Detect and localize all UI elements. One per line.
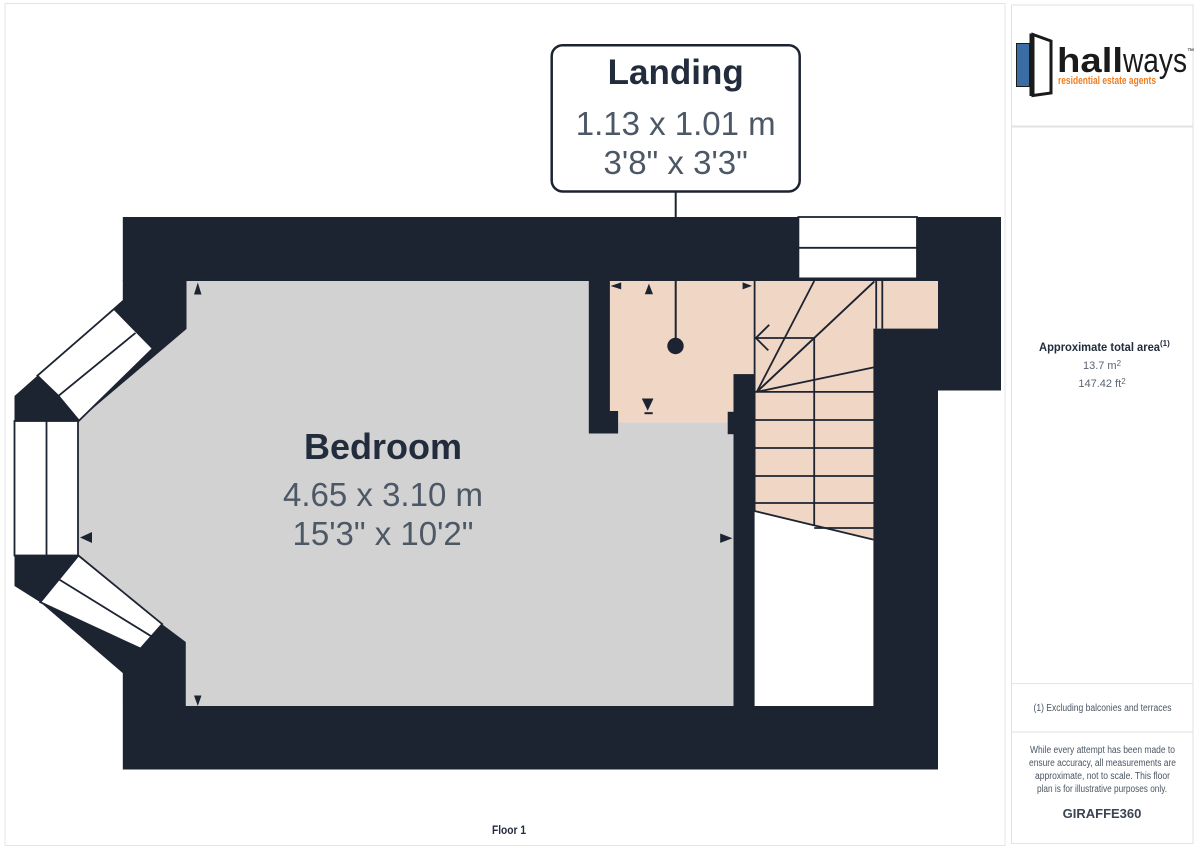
svg-text:plan is for illustrative purpo: plan is for illustrative purposes only. [1037,784,1167,795]
svg-text:While every attempt has been m: While every attempt has been made to [1030,745,1175,756]
svg-text:(1) Excluding balconies and te: (1) Excluding balconies and terraces [1034,703,1172,714]
svg-text:147.42 ft2: 147.42 ft2 [1078,377,1126,390]
svg-text:™: ™ [1187,48,1194,55]
svg-text:4.65 x 3.10 m: 4.65 x 3.10 m [283,476,483,513]
svg-text:residential estate agents: residential estate agents [1058,75,1156,87]
svg-text:GIRAFFE360: GIRAFFE360 [1063,806,1142,821]
svg-text:13.7 m2: 13.7 m2 [1083,359,1122,372]
svg-text:15'3" x 10'2": 15'3" x 10'2" [293,515,474,552]
svg-text:ensure accuracy, all measureme: ensure accuracy, all measurements are [1029,758,1176,769]
svg-text:(1): (1) [1160,339,1170,348]
svg-text:Approximate total area: Approximate total area [1039,340,1160,354]
svg-text:Floor 1: Floor 1 [492,823,526,837]
svg-text:approximate, not to scale. Thi: approximate, not to scale. This floor [1035,771,1171,782]
svg-text:Landing: Landing [608,53,744,92]
svg-text:1.13 x 1.01 m: 1.13 x 1.01 m [576,105,776,142]
svg-text:Bedroom: Bedroom [304,426,462,467]
svg-text:3'8" x 3'3": 3'8" x 3'3" [604,144,748,181]
